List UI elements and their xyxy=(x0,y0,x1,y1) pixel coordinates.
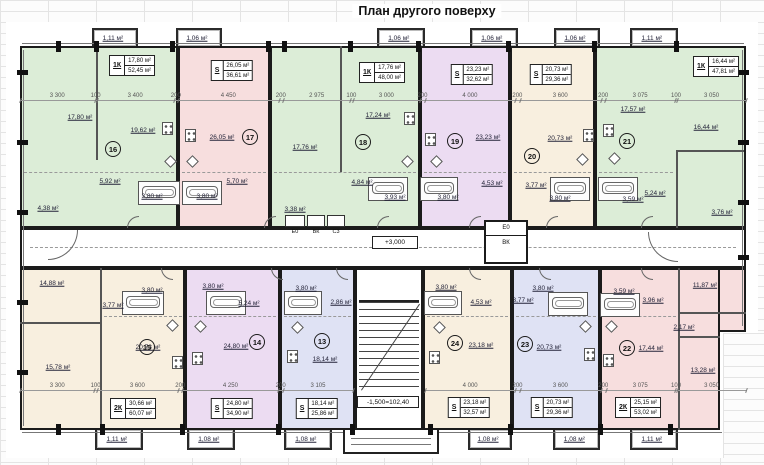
unit-23-zone-line xyxy=(516,316,596,317)
stair-tread xyxy=(359,323,419,324)
unit-20-number-badge: 20 xyxy=(524,148,540,164)
dim-bottom-left-value: 4 250 xyxy=(223,383,238,389)
dim-bottom-left-value: 3 105 xyxy=(310,383,325,389)
window-pier xyxy=(428,424,433,435)
unit-17-zone-line xyxy=(182,172,266,173)
unit-13-number-badge: 13 xyxy=(314,333,330,349)
unit-22-room-area-label: 2,17 м² xyxy=(673,325,694,332)
unit-19-room-area-label: 23,23 м² xyxy=(476,135,501,142)
unit-24-room-area-label: 3,80 м² xyxy=(435,285,456,292)
unit-16-type-label: 1К xyxy=(110,56,125,75)
dim-bottom-right-line xyxy=(425,390,746,391)
unit-13-zone-line xyxy=(284,316,351,317)
unit-17-room-area-label: 5,70 м² xyxy=(226,179,247,186)
unit-19-zone-line xyxy=(424,172,506,173)
stair-tread xyxy=(359,337,419,338)
unit-13-type-label: S xyxy=(297,399,309,418)
unit-24-number-badge: 24 xyxy=(447,335,463,351)
unit-13-stove-icon xyxy=(287,350,298,363)
dim-top-value: 3 600 xyxy=(553,93,568,99)
unit-23-balcony-area-label: 1,08 м² xyxy=(564,437,585,444)
unit-15-room-area-label: 14,88 м² xyxy=(40,281,65,288)
unit-23-room-area-label: 20,73 м² xyxy=(537,345,562,352)
elevator-shaft-bottom-label: ВК xyxy=(486,240,526,246)
window-pier xyxy=(266,41,271,52)
dim-top-value: 3 400 xyxy=(128,93,143,99)
unit-23-stove-icon xyxy=(584,348,595,361)
unit-23-room-area-label: 3,80 м² xyxy=(532,286,553,293)
dim-top-line xyxy=(20,100,746,101)
unit-16-areas: 17,80 м²52,45 м² xyxy=(125,56,154,75)
unit-24-room-area-label: 4,53 м² xyxy=(470,300,491,307)
stair-tread xyxy=(359,372,419,373)
unit-14-room-area-label: 3,80 м² xyxy=(202,284,223,291)
dim-top-value: 100 xyxy=(91,93,101,99)
elevator-shaft-top-label: Е0 xyxy=(486,225,526,231)
unit-21-balcony-area-label: 1,11 м² xyxy=(641,36,662,43)
window-pier xyxy=(598,424,603,435)
unit-19-bathtub-icon xyxy=(424,182,454,194)
stair-tread xyxy=(359,309,419,310)
unit-22-stove-icon xyxy=(603,354,614,367)
window-pier xyxy=(17,210,28,215)
dim-bottom-right-value: 3 075 xyxy=(633,383,648,389)
unit-21-stove-icon xyxy=(603,124,614,137)
unit-15-room-area-label: 3,80 м² xyxy=(141,288,162,295)
unit-20-areas: 20,73 м²29,36 м² xyxy=(542,65,571,84)
window-pier xyxy=(56,424,61,435)
unit-22-type-label: 2К xyxy=(616,398,631,417)
unit-24-type-label: S xyxy=(449,398,461,417)
elevator-shaft: Е0ВК xyxy=(484,220,528,264)
dim-bottom-right-value: 100 xyxy=(671,383,681,389)
unit-15-type-label: 2К xyxy=(111,399,126,418)
unit-19-number-badge: 19 xyxy=(447,133,463,149)
unit-21-zone-line xyxy=(599,172,673,173)
window-pier xyxy=(506,41,511,52)
riser-label: С3 xyxy=(332,229,339,235)
unit-22-partition xyxy=(678,268,680,430)
unit-15-bathtub-icon xyxy=(126,296,160,308)
window-pier xyxy=(348,41,353,52)
unit-19-room-area-label: 4,53 м² xyxy=(481,181,502,188)
unit-22-areas: 25,15 м²53,02 м² xyxy=(631,398,660,417)
unit-24-balcony: 1,08 м² xyxy=(468,430,512,450)
right-window-line xyxy=(742,50,743,326)
stair-tread xyxy=(359,386,419,387)
unit-22-bathtub-icon xyxy=(604,298,636,310)
unit-14-areas: 24,80 м²34,90 м² xyxy=(223,399,252,418)
unit-19-stove-icon xyxy=(425,133,436,146)
unit-22-balcony-area-label: 1,11 м² xyxy=(641,437,662,444)
unit-15-balcony-area-label: 1,11 м² xyxy=(106,437,127,444)
unit-22-info-box: 2К25,15 м²53,02 м² xyxy=(615,397,661,418)
unit-21-room-area-label: 16,44 м² xyxy=(694,125,719,132)
unit-18-partition xyxy=(340,46,342,172)
unit-22-room-area-label: 11,87 м² xyxy=(693,283,717,290)
unit-18-zone-line xyxy=(274,172,416,173)
dim-top-value: 3 300 xyxy=(50,93,65,99)
unit-22-room-area-label: 3,96 м² xyxy=(642,298,663,305)
riser-shaft-box xyxy=(285,215,305,227)
dim-bottom-right-value: 4 000 xyxy=(463,383,478,389)
window-pier xyxy=(100,424,105,435)
unit-13-info-box: S18,14 м²25,86 м² xyxy=(296,398,338,419)
unit-13-areas: 18,14 м²25,86 м² xyxy=(308,399,337,418)
stair-tread xyxy=(359,330,419,331)
unit-18-balcony-area-label: 1,06 м² xyxy=(388,36,409,43)
window-pier xyxy=(56,41,61,52)
window-pier xyxy=(17,140,28,145)
unit-18-bathtub-icon xyxy=(372,182,404,194)
unit-13-room-area-label: 3,80 м² xyxy=(295,286,316,293)
unit-18-type-label: 1К xyxy=(360,63,375,82)
window-pier xyxy=(170,41,175,52)
unit-16-room-area-label: 4,38 м² xyxy=(37,206,58,213)
unit-17-balcony-area-label: 1,06 м² xyxy=(186,36,207,43)
unit-14-balcony-area-label: 1,08 м² xyxy=(198,437,219,444)
spreadsheet-grid-patch xyxy=(723,333,764,458)
porch-step-line xyxy=(351,438,431,439)
unit-14-balcony: 1,08 м² xyxy=(187,430,235,450)
unit-18-room-area-label: 3,93 м² xyxy=(384,195,405,202)
unit-24-zone-line xyxy=(427,316,508,317)
unit-19-balcony-area-label: 1,06 м² xyxy=(481,36,502,43)
unit-19-room-area-label: 3,80 м² xyxy=(437,195,458,202)
window-pier xyxy=(668,424,673,435)
window-pier xyxy=(738,200,749,205)
unit-14-type-label: S xyxy=(212,399,224,418)
unit-18-areas: 17,76 м²48,00 м² xyxy=(375,63,404,82)
dim-top-value: 4 450 xyxy=(221,93,236,99)
dim-top-value: 2 975 xyxy=(309,93,324,99)
stair-landing-line xyxy=(359,300,419,302)
unit-15-number-badge: 15 xyxy=(139,339,155,355)
unit-15-room-area-label: 3,77 м² xyxy=(102,303,123,310)
unit-16-stove-icon xyxy=(162,122,173,135)
unit-20-room-area-label: 3,80 м² xyxy=(549,196,570,203)
unit-14-bathtub-icon xyxy=(210,296,242,308)
unit-24-info-box: S23,18 м²32,57 м² xyxy=(448,397,490,418)
dim-top-value: 4 000 xyxy=(462,93,477,99)
unit-20-bathtub-icon xyxy=(554,182,586,194)
elevator-shaft-divider xyxy=(486,235,526,236)
window-pier xyxy=(17,70,28,75)
stair-tread xyxy=(359,358,419,359)
unit-14-stove-icon xyxy=(192,352,203,365)
unit-16-room-area-label: 19,62 м² xyxy=(131,128,156,135)
unit-21-info-box: 1К16,44 м²47,81 м² xyxy=(693,56,739,77)
stair-tread xyxy=(359,365,419,366)
unit-18-stove-icon xyxy=(404,112,415,125)
window-pier xyxy=(94,41,99,52)
unit-16-zone-line xyxy=(24,172,174,173)
unit-23-room-area-label: 3,77 м² xyxy=(512,298,533,305)
riser-label: ВК xyxy=(313,229,320,235)
unit-13-room-area-label: 2,86 м² xyxy=(330,300,351,307)
window-pier xyxy=(17,300,28,305)
unit-24-balcony-area-label: 1,08 м² xyxy=(477,437,498,444)
unit-21-room-area-label: 17,57 м² xyxy=(621,107,646,114)
unit-18-room-area-label: 17,24 м² xyxy=(366,113,391,120)
unit-24-bathtub-icon xyxy=(428,296,458,308)
unit-16-room-area-label: 17,80 м² xyxy=(68,115,93,122)
dim-top-value: 3 050 xyxy=(704,93,719,99)
unit-15-stove-icon xyxy=(172,356,183,369)
unit-19-areas: 23,23 м²32,62 м² xyxy=(463,65,492,84)
window-pier xyxy=(738,255,749,260)
entrance-porch xyxy=(343,430,439,454)
unit-13-balcony-area-label: 1,08 м² xyxy=(295,437,316,444)
unit-22-number-badge: 22 xyxy=(619,340,635,356)
riser-shaft-box xyxy=(327,215,345,227)
unit-14-room-area-label: 5,24 м² xyxy=(238,301,259,308)
unit-20-stove-icon xyxy=(583,129,594,142)
unit-24-areas: 23,18 м²32,57 м² xyxy=(460,398,489,417)
unit-22-partition xyxy=(678,336,720,338)
unit-15-info-box: 2К30,66 м²60,07 м² xyxy=(110,398,156,419)
unit-21-areas: 16,44 м²47,81 м² xyxy=(709,57,738,76)
unit-16-room-area-label: 3,80 м² xyxy=(141,194,162,201)
stair-tread xyxy=(359,302,419,303)
unit-20-type-label: S xyxy=(531,65,543,84)
unit-14-info-box: S24,80 м²34,90 м² xyxy=(211,398,253,419)
unit-22-partition xyxy=(678,312,746,314)
window-pier xyxy=(674,41,679,52)
unit-20-balcony-area-label: 1,06 м² xyxy=(564,36,585,43)
unit-22-room-area-label: 13,28 м² xyxy=(691,368,716,375)
unit-17-info-box: S26,05 м²36,61 м² xyxy=(211,60,253,81)
unit-23-areas: 20,73 м²29,36 м² xyxy=(543,398,572,417)
unit-16-balcony-area-label: 1,11 м² xyxy=(103,36,124,43)
unit-17-type-label: S xyxy=(212,61,224,80)
window-pier xyxy=(416,41,421,52)
window-pier xyxy=(276,424,281,435)
window-pier xyxy=(738,70,749,75)
window-pier xyxy=(180,424,185,435)
unit-22-room-area-label: 3,59 м² xyxy=(613,289,634,296)
floor-plan-canvas: План другого поверху 17,80 м²19,62 м²5,9… xyxy=(0,0,764,465)
unit-13-room-area-label: 18,14 м² xyxy=(313,357,338,364)
unit-13-balcony: 1,08 м² xyxy=(284,430,332,450)
unit-23-type-label: S xyxy=(532,398,544,417)
unit-15-areas: 30,66 м²60,07 м² xyxy=(126,399,155,418)
unit-21-number-badge: 21 xyxy=(619,133,635,149)
dim-bottom-left-value: 100 xyxy=(91,383,101,389)
unit-19-info-box: S23,23 м²32,62 м² xyxy=(451,64,493,85)
unit-14-room-area-label: 24,80 м² xyxy=(224,344,249,351)
unit-20-zone-line xyxy=(514,172,591,173)
dim-bottom-left-value: 3 600 xyxy=(130,383,145,389)
riser-label: Е0 xyxy=(292,229,299,235)
unit-18-room-area-label: 17,76 м² xyxy=(293,145,318,152)
dim-top-value: 3 000 xyxy=(379,93,394,99)
dim-top-value: 3 075 xyxy=(633,93,648,99)
unit-14-zone-line xyxy=(189,316,276,317)
unit-20-room-area-label: 3,77 м² xyxy=(525,183,546,190)
unit-23-number-badge: 23 xyxy=(517,336,533,352)
dim-top-value: 100 xyxy=(671,93,681,99)
unit-17-room-area-label: 3,80 м² xyxy=(196,194,217,201)
unit-21-partition xyxy=(676,150,744,152)
unit-16-room-area-label: 5,92 м² xyxy=(99,179,120,186)
unit-17-number-badge: 17 xyxy=(242,129,258,145)
unit-17-stove-icon xyxy=(185,129,196,142)
unit-17-areas: 26,05 м²36,61 м² xyxy=(223,61,252,80)
stair-level-mark: -1,500=102,40 xyxy=(357,396,419,408)
unit-23-balcony: 1,08 м² xyxy=(553,430,600,450)
unit-18-number-badge: 18 xyxy=(355,134,371,150)
unit-18-room-area-label: 4,84 м² xyxy=(351,180,372,187)
window-pier xyxy=(282,41,287,52)
unit-21-room-area-label: 3,76 м² xyxy=(711,210,732,217)
porch-step-line xyxy=(351,444,431,445)
riser-shaft-box xyxy=(307,215,325,227)
floor-plan-drawing: 17,80 м²19,62 м²5,92 м²3,80 м²4,38 м²161… xyxy=(0,0,764,465)
window-pier xyxy=(350,424,355,435)
unit-18-room-area-label: 3,38 м² xyxy=(284,207,305,214)
unit-20-room-area-label: 20,73 м² xyxy=(548,136,573,143)
unit-24-room-area-label: 23,18 м² xyxy=(469,343,494,350)
corridor-level-mark: +3,000 xyxy=(372,236,418,249)
unit-19-type-label: S xyxy=(452,65,464,84)
stair-tread xyxy=(359,344,419,345)
dim-bottom-right-value: 3 600 xyxy=(553,383,568,389)
dim-bottom-right-value: 3 050 xyxy=(704,383,719,389)
window-pier xyxy=(508,424,513,435)
window-pier xyxy=(738,140,749,145)
unit-16-info-box: 1К17,80 м²52,45 м² xyxy=(109,55,155,76)
unit-15-zone-line xyxy=(104,316,182,317)
window-pier xyxy=(17,370,28,375)
top-window-line xyxy=(22,43,744,44)
unit-21-bathtub-icon xyxy=(602,182,634,194)
unit-21-type-label: 1К xyxy=(694,57,709,76)
unit-13-bathtub-icon xyxy=(288,296,318,308)
unit-15-partition xyxy=(20,322,102,324)
unit-15-room-area-label: 15,78 м² xyxy=(46,365,71,372)
dim-bottom-left-value: 3 300 xyxy=(50,383,65,389)
window-pier xyxy=(592,41,597,52)
stair-tread xyxy=(359,351,419,352)
unit-22-room-area-label: 17,44 м² xyxy=(639,346,664,353)
unit-21-room-area-label: 5,24 м² xyxy=(644,191,665,198)
unit-18-info-box: 1К17,76 м²48,00 м² xyxy=(359,62,405,83)
unit-20-info-box: S20,73 м²29,36 м² xyxy=(530,64,572,85)
unit-16-number-badge: 16 xyxy=(105,141,121,157)
unit-21-partition xyxy=(676,150,678,228)
unit-23-info-box: S20,73 м²29,36 м² xyxy=(531,397,573,418)
unit-17-room-area-label: 26,05 м² xyxy=(210,135,235,142)
unit-15-partition xyxy=(100,268,102,430)
unit-21-room-area-label: 3,59 м² xyxy=(622,197,643,204)
unit-24-stove-icon xyxy=(429,351,440,364)
unit-23-bathtub-icon xyxy=(552,297,584,309)
unit-14-number-badge: 14 xyxy=(249,334,265,350)
dim-bottom-left-line xyxy=(20,390,353,391)
